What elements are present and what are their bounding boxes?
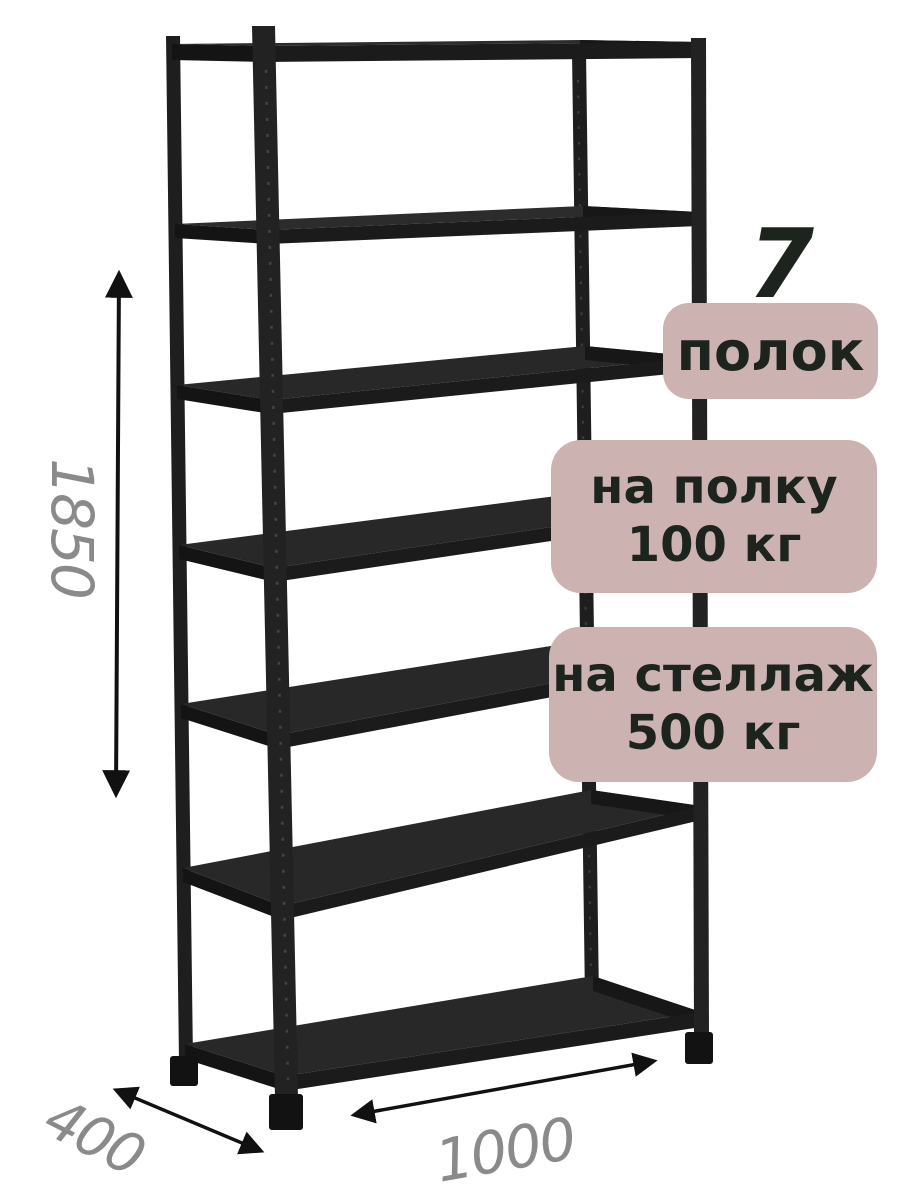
height-arrow [116, 274, 119, 794]
shelf [183, 790, 701, 920]
product-image: 1850 400 1000 7 полок на полку 100 кг на… [0, 0, 900, 1200]
rack-foot [685, 1032, 713, 1064]
shelf [175, 206, 699, 244]
shelf-count-badge-label: полок [677, 320, 865, 383]
per-rack-load-line1: на стеллаж [552, 647, 874, 705]
rack-foot [269, 1094, 303, 1130]
rack-foot [170, 1056, 198, 1086]
per-shelf-load-line2: 100 кг [627, 517, 802, 575]
shelf [172, 40, 699, 62]
per-rack-load-badge: на стеллаж 500 кг [549, 627, 877, 782]
rack-illustration [0, 0, 900, 1200]
per-rack-load-line2: 500 кг [626, 705, 801, 763]
shelf-count-number: 7 [722, 220, 840, 310]
height-dimension-label: 1850 [38, 440, 106, 616]
shelf [177, 346, 700, 414]
shelf-count-badge: полок [663, 303, 878, 399]
shelf [185, 976, 701, 1091]
per-shelf-load-badge: на полку 100 кг [551, 440, 877, 593]
per-shelf-load-line1: на полку [590, 459, 837, 517]
